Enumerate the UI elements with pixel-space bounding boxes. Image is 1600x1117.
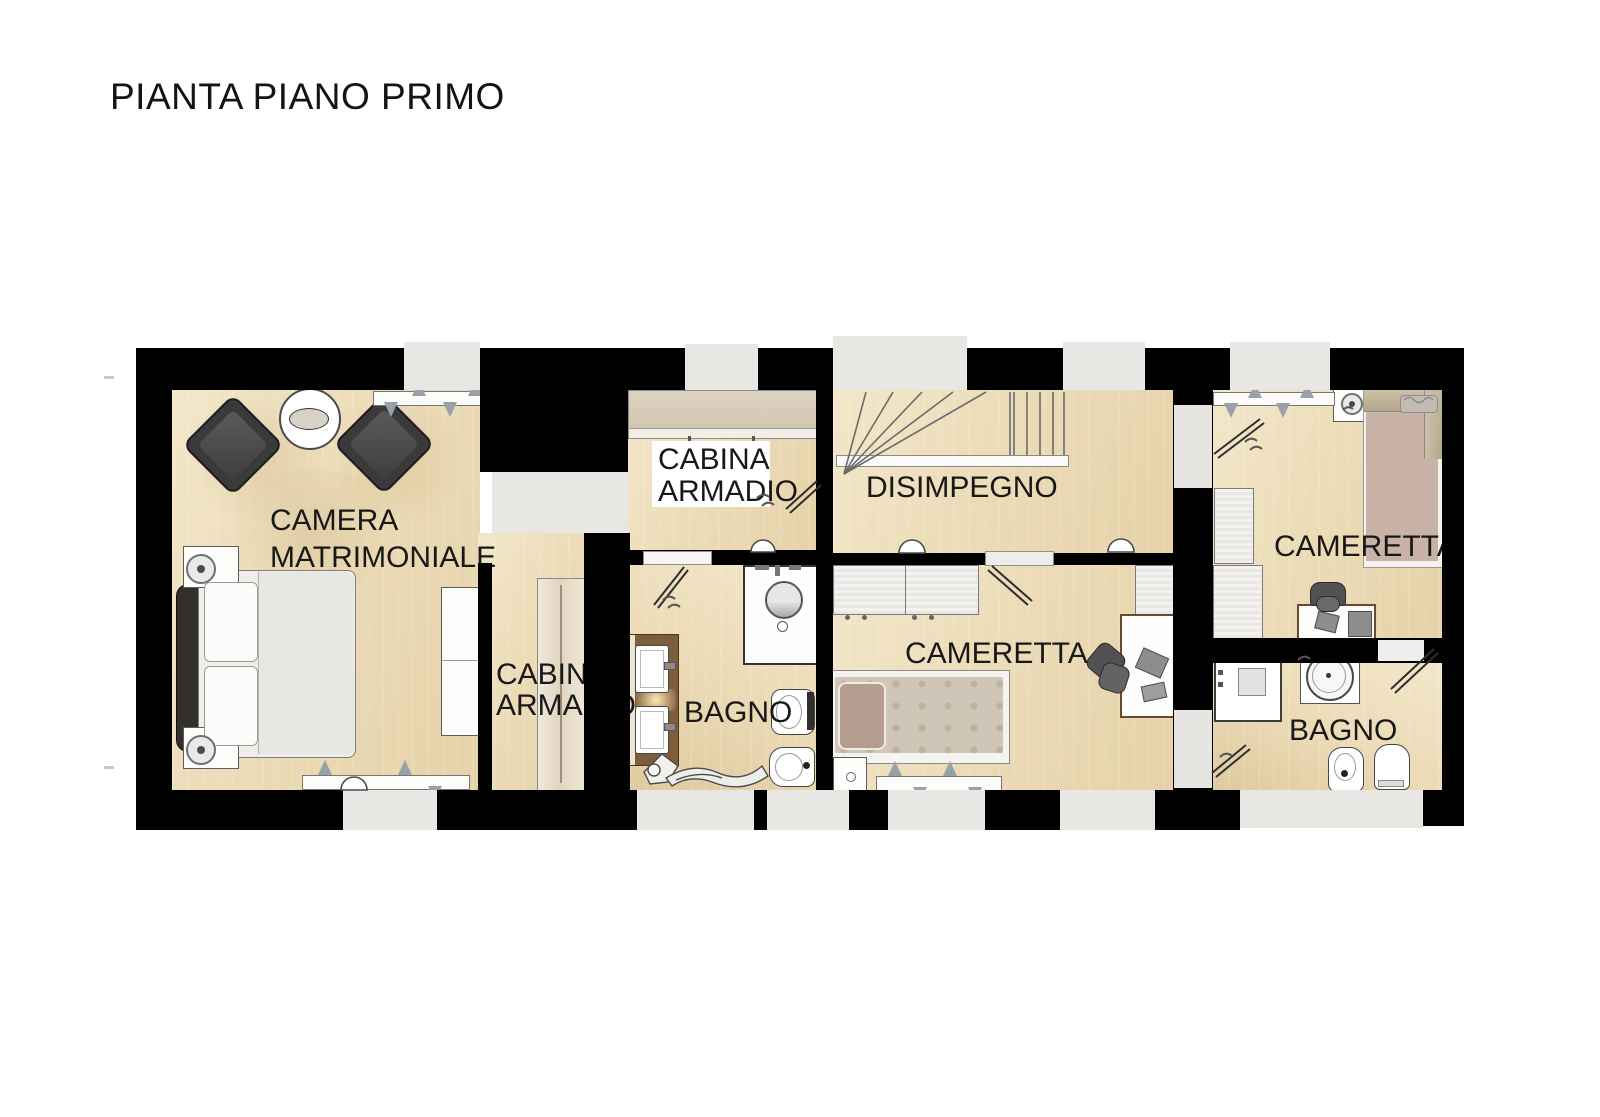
wardrobe-symbol <box>905 565 979 615</box>
door-opening <box>985 551 1054 566</box>
bidet-symbol <box>1328 747 1364 792</box>
room-label-walk-in-closet-top: CABINA ARMADIO <box>658 444 798 508</box>
window-opening <box>888 790 985 830</box>
armchair-cushion <box>349 409 420 480</box>
window-opening <box>767 790 849 830</box>
shower-fitting-icon <box>1218 670 1223 675</box>
pillow-symbol <box>838 682 886 750</box>
page-title: PIANTA PIANO PRIMO <box>110 76 505 118</box>
window-opening <box>404 342 480 390</box>
wall <box>967 348 1063 390</box>
shower-symbol <box>743 565 819 665</box>
table-lamp-icon <box>186 554 216 584</box>
toilet-symbol <box>1374 744 1410 790</box>
window-opening <box>1240 790 1423 828</box>
room-label-left-bedroom: CAMERETTA <box>905 637 1088 671</box>
faucet-icon <box>803 762 810 769</box>
wall <box>1423 790 1464 826</box>
shower-fitting-icon <box>789 565 801 570</box>
shower-fitting-icon <box>755 565 769 570</box>
wardrobe-symbol <box>1213 565 1263 640</box>
door-opening <box>1378 640 1424 661</box>
stair-landing-edge <box>836 455 1069 467</box>
wall <box>136 348 172 830</box>
duvet-symbol <box>258 572 354 754</box>
wardrobe-symbol <box>441 587 482 736</box>
window-opening <box>1060 790 1155 830</box>
pillow-symbol <box>1400 395 1438 413</box>
exterior-recess <box>492 472 628 533</box>
window-sill <box>876 776 1002 791</box>
armchair-cushion <box>198 410 269 481</box>
laptop-icon <box>1348 611 1372 637</box>
wall <box>849 790 888 830</box>
wall <box>1442 348 1464 826</box>
window-opening <box>833 336 967 390</box>
wall <box>480 348 628 472</box>
wall <box>628 348 685 390</box>
shower-basin <box>765 581 803 619</box>
wardrobe-symbol <box>833 565 907 615</box>
wall <box>985 790 1060 830</box>
window-opening <box>685 344 758 390</box>
window-opening <box>637 790 754 830</box>
single-bed-symbol <box>831 670 1010 764</box>
wall <box>584 533 630 790</box>
door-opening <box>643 551 712 565</box>
table-lamp-icon <box>1341 393 1363 415</box>
door-opening <box>1174 405 1212 488</box>
wardrobe-symbol <box>1135 565 1175 615</box>
window-opening <box>1230 342 1330 390</box>
room-label-master-bedroom: CAMERA MATRIMONIALE <box>270 504 496 575</box>
room-label-hallway: DISIMPEGNO <box>866 471 1058 505</box>
wall <box>758 348 833 390</box>
wall <box>478 563 492 790</box>
drain-icon <box>1326 673 1331 678</box>
faucet-icon <box>664 662 676 670</box>
dimension-tick <box>104 766 114 769</box>
wall <box>437 790 637 830</box>
window-sill <box>302 775 470 790</box>
room-label-main-bathroom: BAGNO <box>684 696 792 730</box>
pillow-symbol <box>204 582 258 662</box>
shower-fitting-icon <box>1218 682 1223 687</box>
round-side-table-symbol <box>279 388 341 450</box>
dimension-tick <box>104 376 114 379</box>
shower-fitting-icon <box>775 564 780 576</box>
wardrobe-symbol <box>1214 488 1254 564</box>
faucet-icon <box>664 723 676 731</box>
wall <box>816 390 833 790</box>
faucet-icon <box>1341 770 1348 777</box>
window-opening <box>1063 342 1145 390</box>
cistern <box>807 692 814 730</box>
door-opening <box>1174 710 1212 788</box>
wall <box>136 790 343 830</box>
wall <box>754 790 767 830</box>
chair-symbol <box>1316 596 1340 612</box>
drain-icon <box>777 621 788 632</box>
room-label-right-bathroom: BAGNO <box>1289 714 1397 748</box>
wall <box>1155 790 1240 830</box>
window-opening <box>343 790 437 830</box>
pillow-symbol <box>204 666 258 746</box>
wall <box>1145 348 1230 390</box>
floor-plan-canvas: PIANTA PIANO PRIMO <box>0 0 1600 1117</box>
table-tray <box>289 408 329 430</box>
table-lamp-icon <box>186 735 216 765</box>
room-label-right-bedroom: CAMERETTA <box>1274 530 1457 564</box>
bidet-symbol <box>769 747 815 787</box>
wall <box>136 348 404 390</box>
closet-cabinet-symbol <box>628 390 820 439</box>
